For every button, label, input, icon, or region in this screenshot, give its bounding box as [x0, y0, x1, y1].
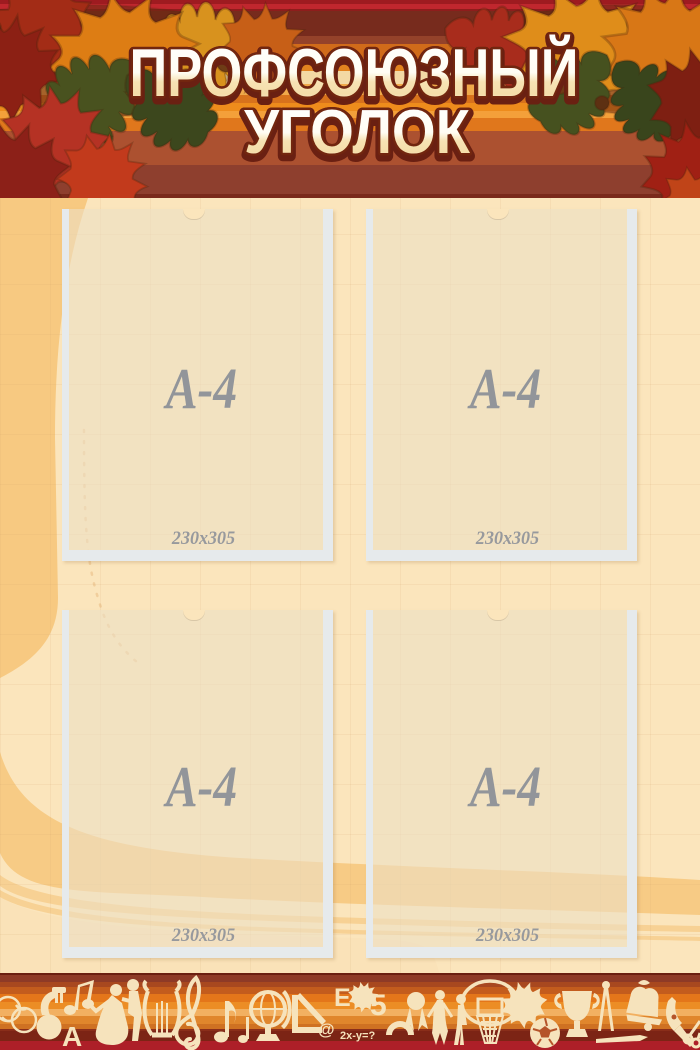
svg-text:5: 5 [370, 989, 387, 1022]
svg-text:2x-y=?: 2x-y=? [340, 1030, 375, 1042]
svg-text:А: А [62, 1021, 82, 1050]
svg-text:@: @ [318, 1020, 335, 1039]
svg-text:E: E [334, 984, 351, 1012]
svg-text:УГОЛОК: УГОЛОК [244, 98, 470, 167]
